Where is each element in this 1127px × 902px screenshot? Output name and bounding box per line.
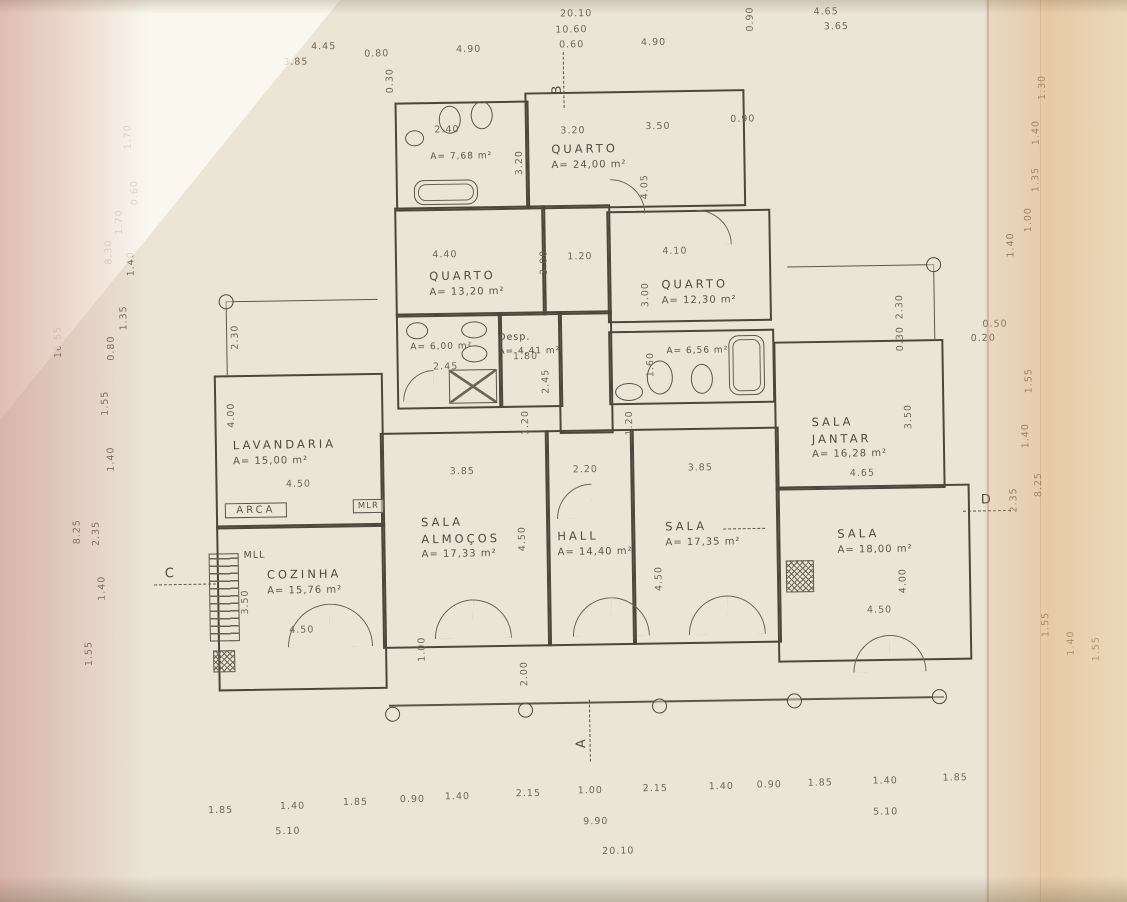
dimension-label: 4.50: [289, 624, 314, 635]
dimension-label: 0.50: [982, 319, 1007, 330]
dimension-label: 2.45: [433, 361, 458, 372]
dimension-label: 8.30: [103, 239, 114, 264]
dimension-label: 0.90: [745, 6, 756, 31]
dimension-label: 3.00: [538, 250, 549, 275]
dimension-label: 2.30: [894, 294, 905, 319]
dimension-label: 1.70: [114, 209, 125, 234]
dimension-label: 1.80: [513, 351, 538, 362]
dimension-label: 0.90: [730, 113, 755, 124]
dimension-label: 4.90: [456, 44, 481, 55]
dimension-label: 1.40: [709, 781, 734, 792]
dimension-label: 1.85: [808, 777, 833, 788]
dimension-label: 3.50: [645, 121, 670, 132]
dimension-label: 1.40: [1065, 630, 1076, 655]
dimension-label: 0.60: [129, 180, 140, 205]
dimension-label: 4.45: [311, 41, 336, 52]
dimension-label: 2.00: [519, 661, 530, 686]
dimension-label: 2.15: [643, 783, 668, 794]
dimension-label: 1.60: [645, 352, 656, 377]
dimension-label: 3.00: [640, 282, 651, 307]
dimension-label: 1.00: [416, 637, 427, 662]
dimension-label: 4.00: [897, 568, 908, 593]
dimension-label: 1.70: [122, 124, 133, 149]
dimension-label: 0.30: [384, 68, 395, 93]
dimension-label: 3.85: [688, 462, 713, 473]
dimension-label: 3.50: [240, 589, 251, 614]
dimension-label: 1.00: [578, 785, 603, 796]
dimension-label: 1.40: [445, 791, 470, 802]
dimension-label: 5.10: [873, 806, 898, 817]
dimension-label: 4.50: [653, 566, 664, 591]
dimension-label: 4.50: [517, 526, 528, 551]
dimension-label: 2.35: [1008, 487, 1019, 512]
dimension-label: 4.10: [662, 246, 687, 257]
dimension-label: 4.65: [813, 6, 838, 17]
dimension-label: 1.20: [520, 410, 531, 435]
dimension-label: 2.30: [229, 324, 240, 349]
dimension-label: 1.85: [343, 797, 368, 808]
dimension-label: 3.20: [514, 150, 525, 175]
scanned-floor-plan-sheet: B A C D QUARTO A= 24,00 m² QUARTO A= 13,…: [0, 0, 1127, 902]
dimension-label: 1.20: [624, 410, 635, 435]
dimension-label: 0.60: [559, 39, 584, 50]
dimension-label: 1.40: [96, 576, 107, 601]
dimension-label: 4.05: [639, 174, 650, 199]
dimension-label: 1.40: [125, 251, 136, 276]
dimension-label: 3.85: [450, 466, 475, 477]
dimension-label: 0.30: [895, 326, 906, 351]
dimension-label: 2.20: [573, 464, 598, 475]
dimension-label: 4.00: [226, 403, 237, 428]
dimension-label: 1.40: [1030, 120, 1041, 145]
dimension-label: 2.15: [516, 788, 541, 799]
dimension-label: 1.85: [208, 805, 233, 816]
dimension-label: 4.50: [867, 604, 892, 615]
dimension-label: 8.25: [1033, 472, 1044, 497]
dimension-label: 4.50: [286, 478, 311, 489]
dimension-label: 0.90: [400, 794, 425, 805]
dimension-label: 1.00: [1023, 207, 1034, 232]
dimension-label: 1.55: [1023, 368, 1034, 393]
dimension-label: 2.35: [91, 521, 102, 546]
dimension-label: 3.65: [824, 21, 849, 32]
dimension-label: 4.40: [432, 249, 457, 260]
dimension-label: 5.10: [275, 826, 300, 837]
dimension-label: 8.25: [72, 519, 83, 544]
dimension-label: 1.40: [280, 801, 305, 812]
dimension-label: 1.40: [1005, 232, 1016, 257]
dimension-label: 1.55: [99, 391, 110, 416]
dimension-label: 2.45: [540, 369, 551, 394]
dimension-label: 4.90: [641, 37, 666, 48]
dimension-label: 1.40: [105, 446, 116, 471]
dimension-label: 3.20: [560, 125, 585, 136]
dimension-label: 1.55: [83, 641, 94, 666]
dimension-label: 20.10: [602, 845, 634, 857]
dimension-label: 10.60: [555, 24, 587, 36]
dimension-label: 1.40: [1020, 423, 1031, 448]
dimension-label: 3.85: [283, 56, 308, 67]
dimension-label: 1.20: [567, 251, 592, 262]
dimension-label: 2.40: [434, 124, 459, 135]
dimension-label: 3.50: [903, 404, 914, 429]
dimension-label: 1.40: [873, 775, 898, 786]
dimension-label: 20.10: [560, 8, 592, 20]
dimension-label: 0.90: [757, 779, 782, 790]
dimension-label: 0.20: [971, 333, 996, 344]
dimension-label: 16.55: [52, 326, 64, 358]
dimension-label: 4.65: [850, 468, 875, 479]
dimension-label: 1.55: [1090, 636, 1101, 661]
dimension-layer: 20.1010.600.603.854.450.804.904.900.300.…: [0, 0, 1127, 902]
dimension-label: 1.55: [1040, 612, 1051, 637]
dimension-label: 9.90: [583, 816, 608, 827]
dimension-label: 0.80: [364, 48, 389, 59]
dimension-label: 1.35: [118, 305, 129, 330]
dimension-label: 1.30: [1037, 75, 1048, 100]
dimension-label: 1.85: [943, 772, 968, 783]
floor-plan-drawing: B A C D QUARTO A= 24,00 m² QUARTO A= 13,…: [0, 0, 1127, 902]
dimension-label: 0.80: [106, 335, 117, 360]
dimension-label: 1.35: [1030, 167, 1041, 192]
